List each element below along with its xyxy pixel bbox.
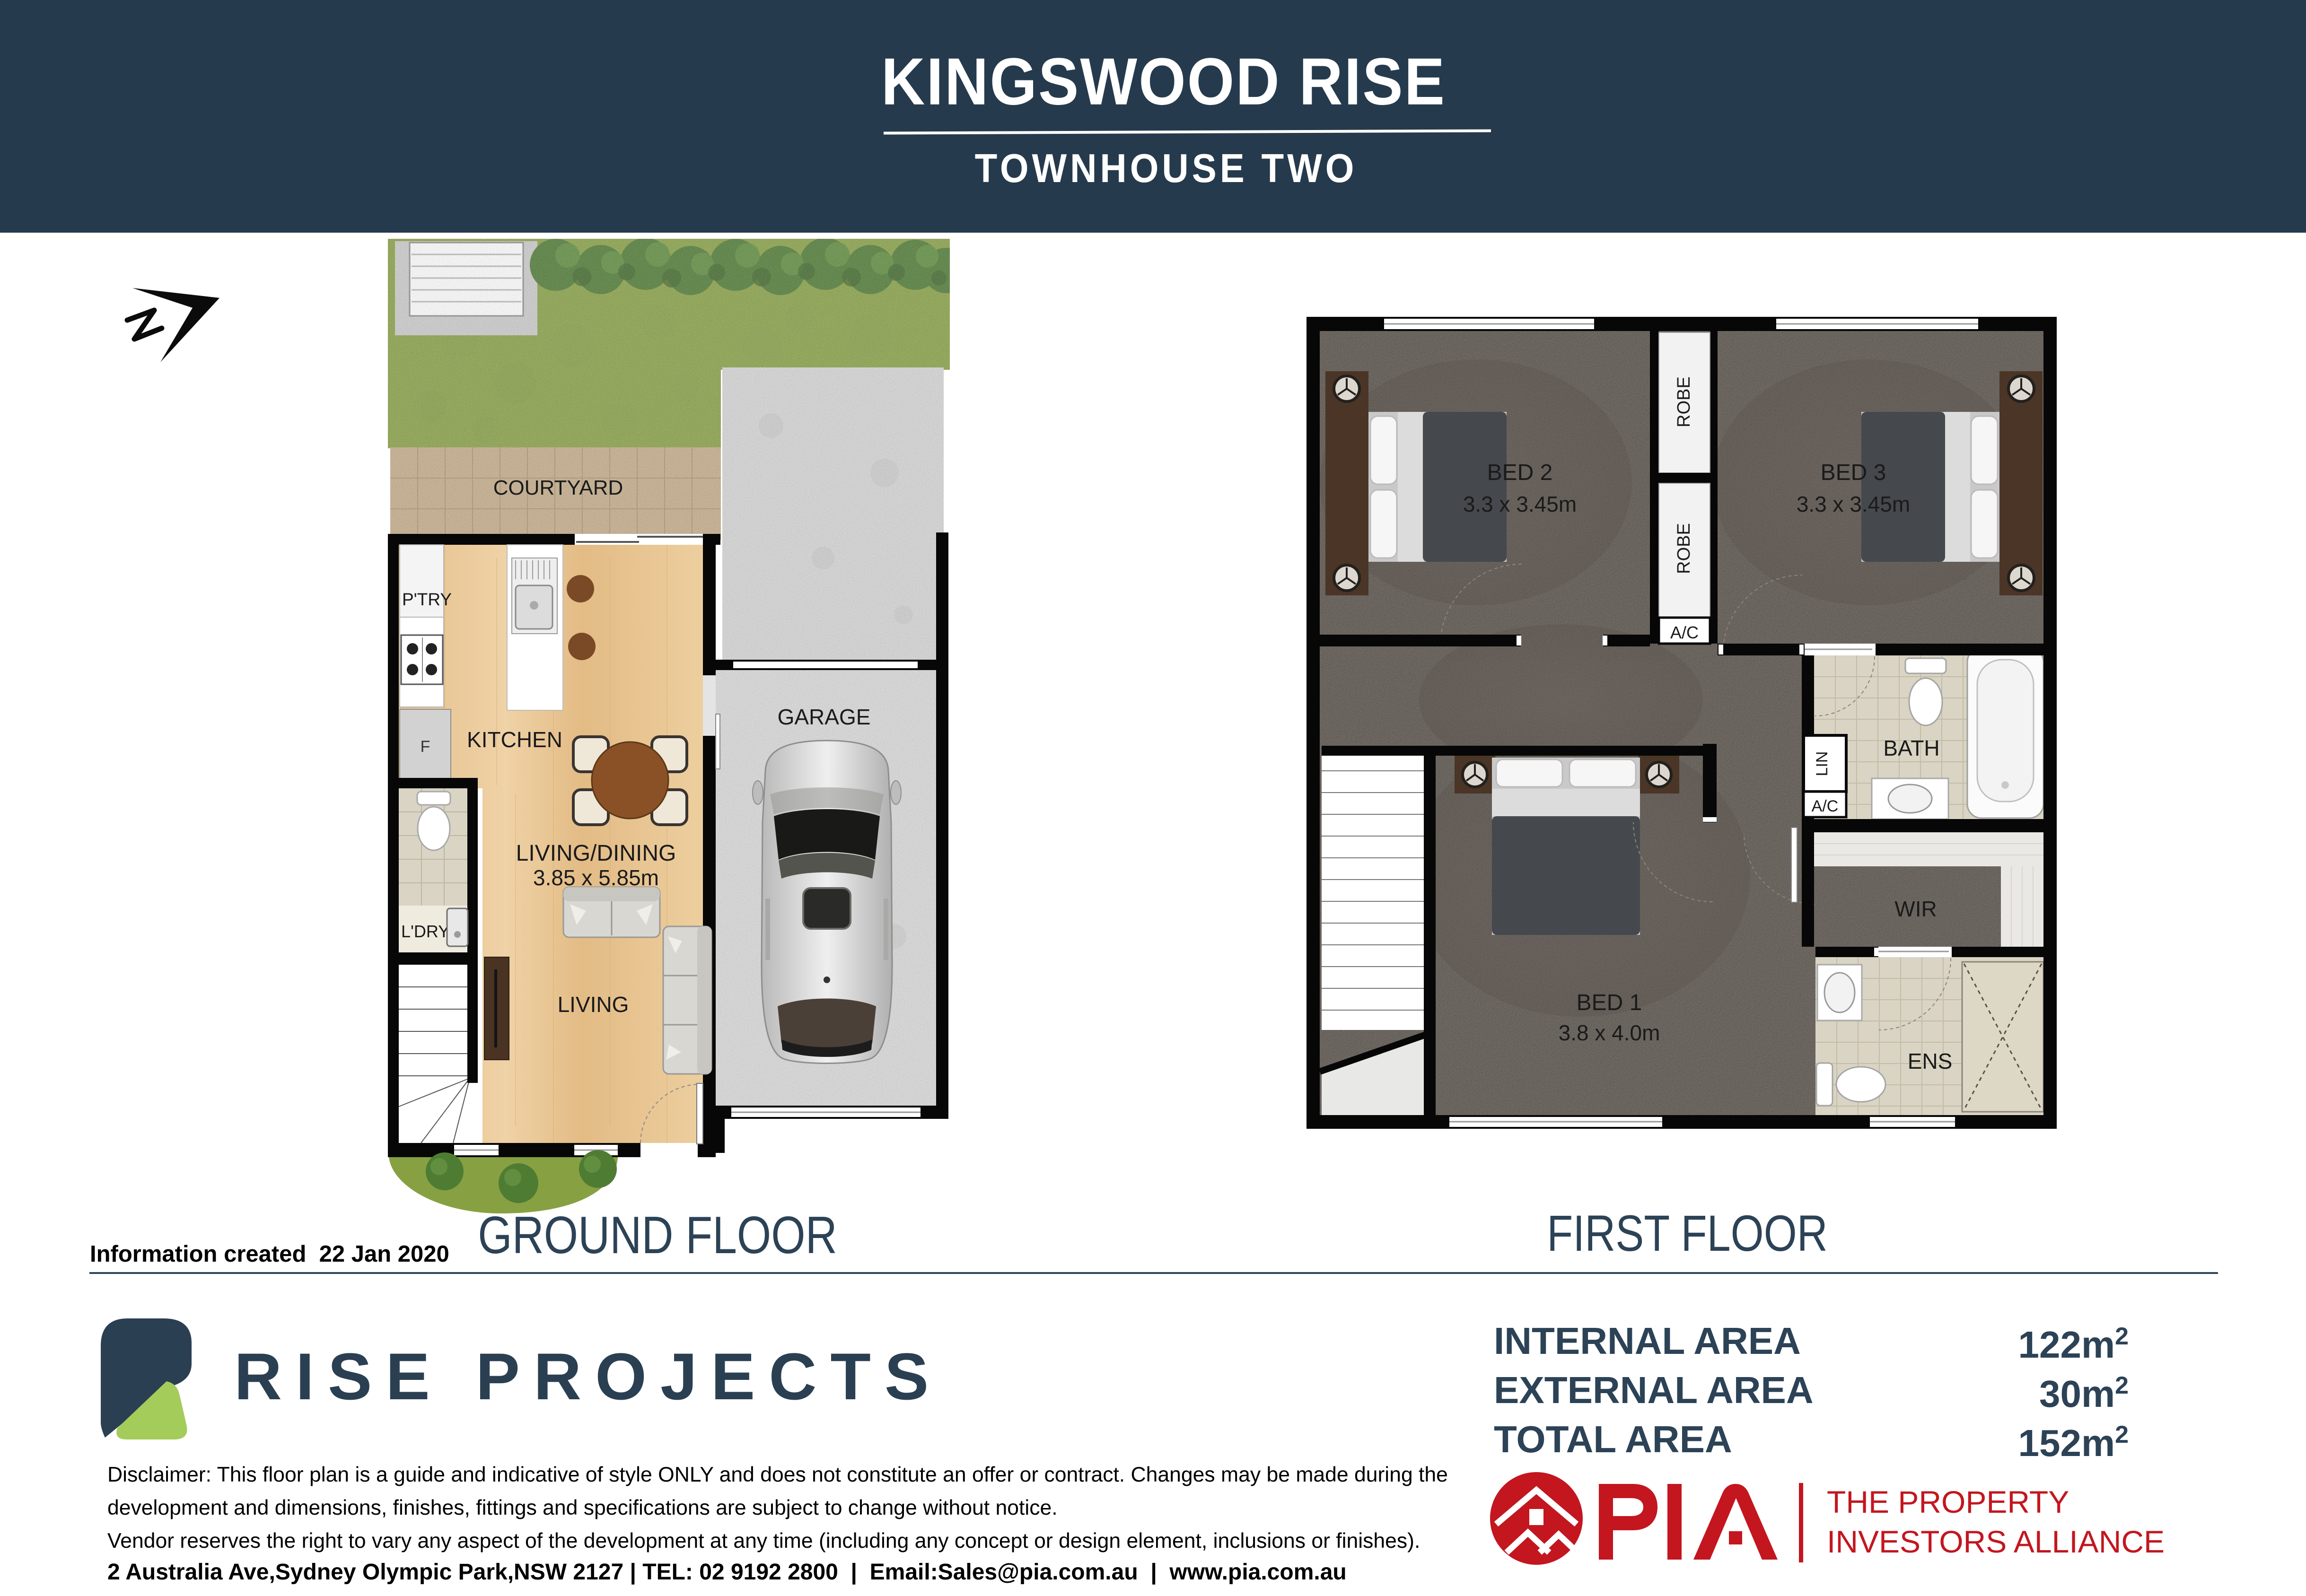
- svg-text:P'TRY: P'TRY: [402, 590, 452, 609]
- svg-text:WIR: WIR: [1894, 897, 1937, 921]
- svg-text:LIVING/DINING: LIVING/DINING: [516, 841, 676, 866]
- svg-text:LIVING: LIVING: [558, 992, 629, 1017]
- svg-text:BED 3: BED 3: [1821, 460, 1886, 485]
- svg-text:ROBE: ROBE: [1674, 523, 1694, 574]
- svg-text:BATH: BATH: [1883, 736, 1939, 760]
- svg-text:F: F: [421, 738, 430, 756]
- svg-text:3.8 x 4.0m: 3.8 x 4.0m: [1559, 1020, 1660, 1045]
- svg-text:3.85 x 5.85m: 3.85 x 5.85m: [533, 865, 659, 890]
- svg-text:BED 1: BED 1: [1577, 990, 1642, 1015]
- svg-text:L'DRY: L'DRY: [401, 922, 449, 941]
- svg-text:BED 2: BED 2: [1487, 460, 1553, 485]
- svg-text:3.3 x 3.45m: 3.3 x 3.45m: [1463, 492, 1577, 516]
- svg-text:LIN: LIN: [1813, 751, 1831, 776]
- svg-text:ENS: ENS: [1908, 1049, 1953, 1073]
- svg-text:KITCHEN: KITCHEN: [467, 727, 562, 752]
- svg-text:A/C: A/C: [1812, 797, 1839, 815]
- svg-text:COURTYARD: COURTYARD: [493, 476, 623, 499]
- svg-text:3.3 x 3.45m: 3.3 x 3.45m: [1797, 492, 1910, 516]
- svg-text:ROBE: ROBE: [1674, 376, 1694, 427]
- svg-text:GARAGE: GARAGE: [778, 705, 871, 729]
- svg-text:A/C: A/C: [1670, 623, 1699, 642]
